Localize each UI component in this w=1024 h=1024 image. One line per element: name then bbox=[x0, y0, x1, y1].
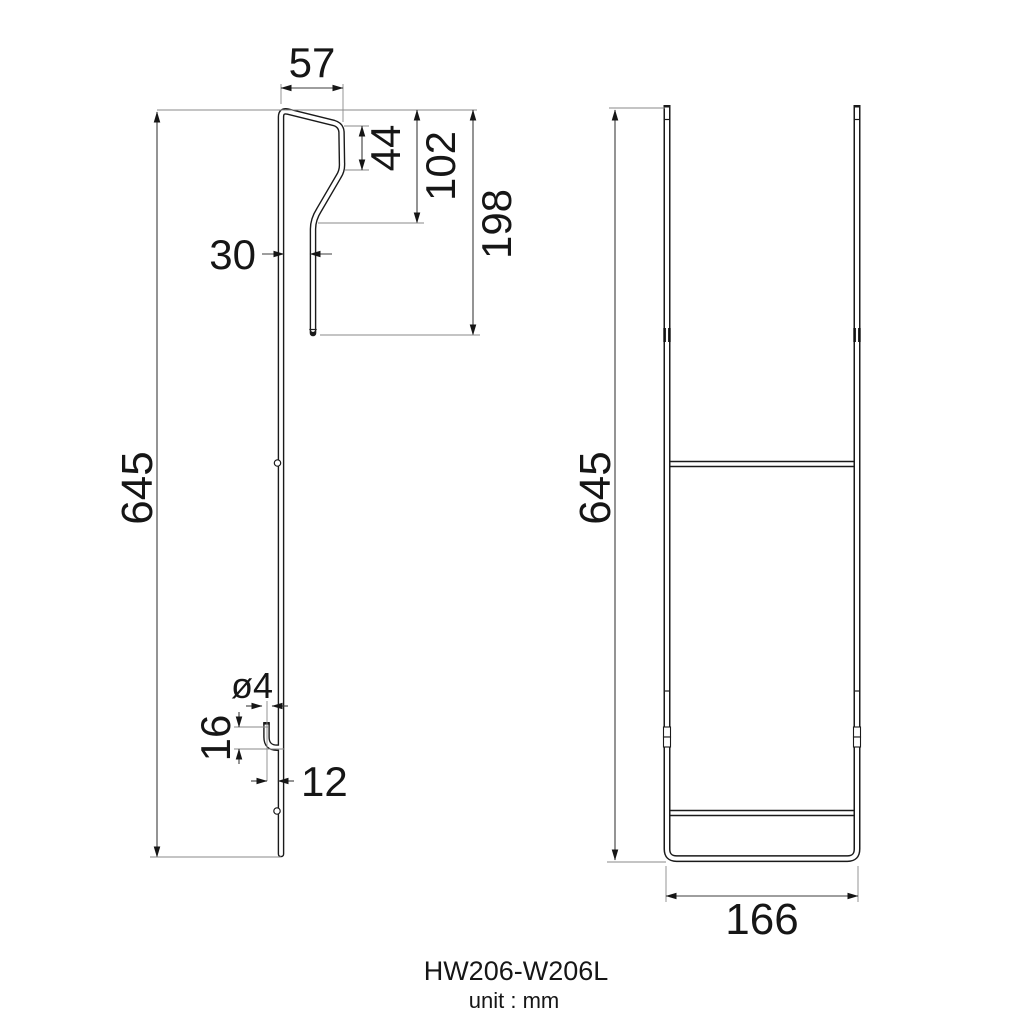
dim30-label: 30 bbox=[209, 231, 256, 278]
dim645R-label: 645 bbox=[571, 451, 620, 524]
front-view-dimensions: 645 166 bbox=[571, 108, 858, 944]
dim198-label: 198 bbox=[473, 189, 520, 259]
left-rail-tab-lower bbox=[664, 737, 671, 747]
dim102-label: 102 bbox=[417, 131, 464, 201]
side-view-dimensions: 57 44 102 198 30 ø4 16 12 bbox=[113, 39, 520, 857]
front-frame-outline bbox=[667, 105, 857, 859]
technical-drawing-page: 57 44 102 198 30 ø4 16 12 bbox=[0, 0, 1024, 1024]
dim44-label: 44 bbox=[362, 125, 409, 172]
model-number: HW206-W206L bbox=[424, 956, 609, 986]
drawing-canvas: 57 44 102 198 30 ø4 16 12 bbox=[0, 0, 1024, 1024]
unit-note: unit : mm bbox=[469, 988, 559, 1013]
front-view bbox=[664, 105, 861, 859]
right-rail-tab-upper bbox=[854, 727, 861, 737]
dim16-label: 16 bbox=[192, 715, 239, 762]
front-frame-inner bbox=[667, 108, 857, 859]
left-rail-tab-upper bbox=[664, 727, 671, 737]
dim166-label: 166 bbox=[725, 895, 798, 944]
title-block: HW206-W206L unit : mm bbox=[424, 956, 609, 1013]
plate-hole-lower bbox=[274, 808, 280, 814]
dim12-label: 12 bbox=[301, 758, 348, 805]
right-rail-tab-lower bbox=[854, 737, 861, 747]
plate-hole-upper bbox=[274, 460, 280, 466]
dim57-label: 57 bbox=[289, 39, 336, 86]
dia4-label: ø4 bbox=[231, 665, 273, 706]
dim645L-label: 645 bbox=[113, 451, 162, 524]
